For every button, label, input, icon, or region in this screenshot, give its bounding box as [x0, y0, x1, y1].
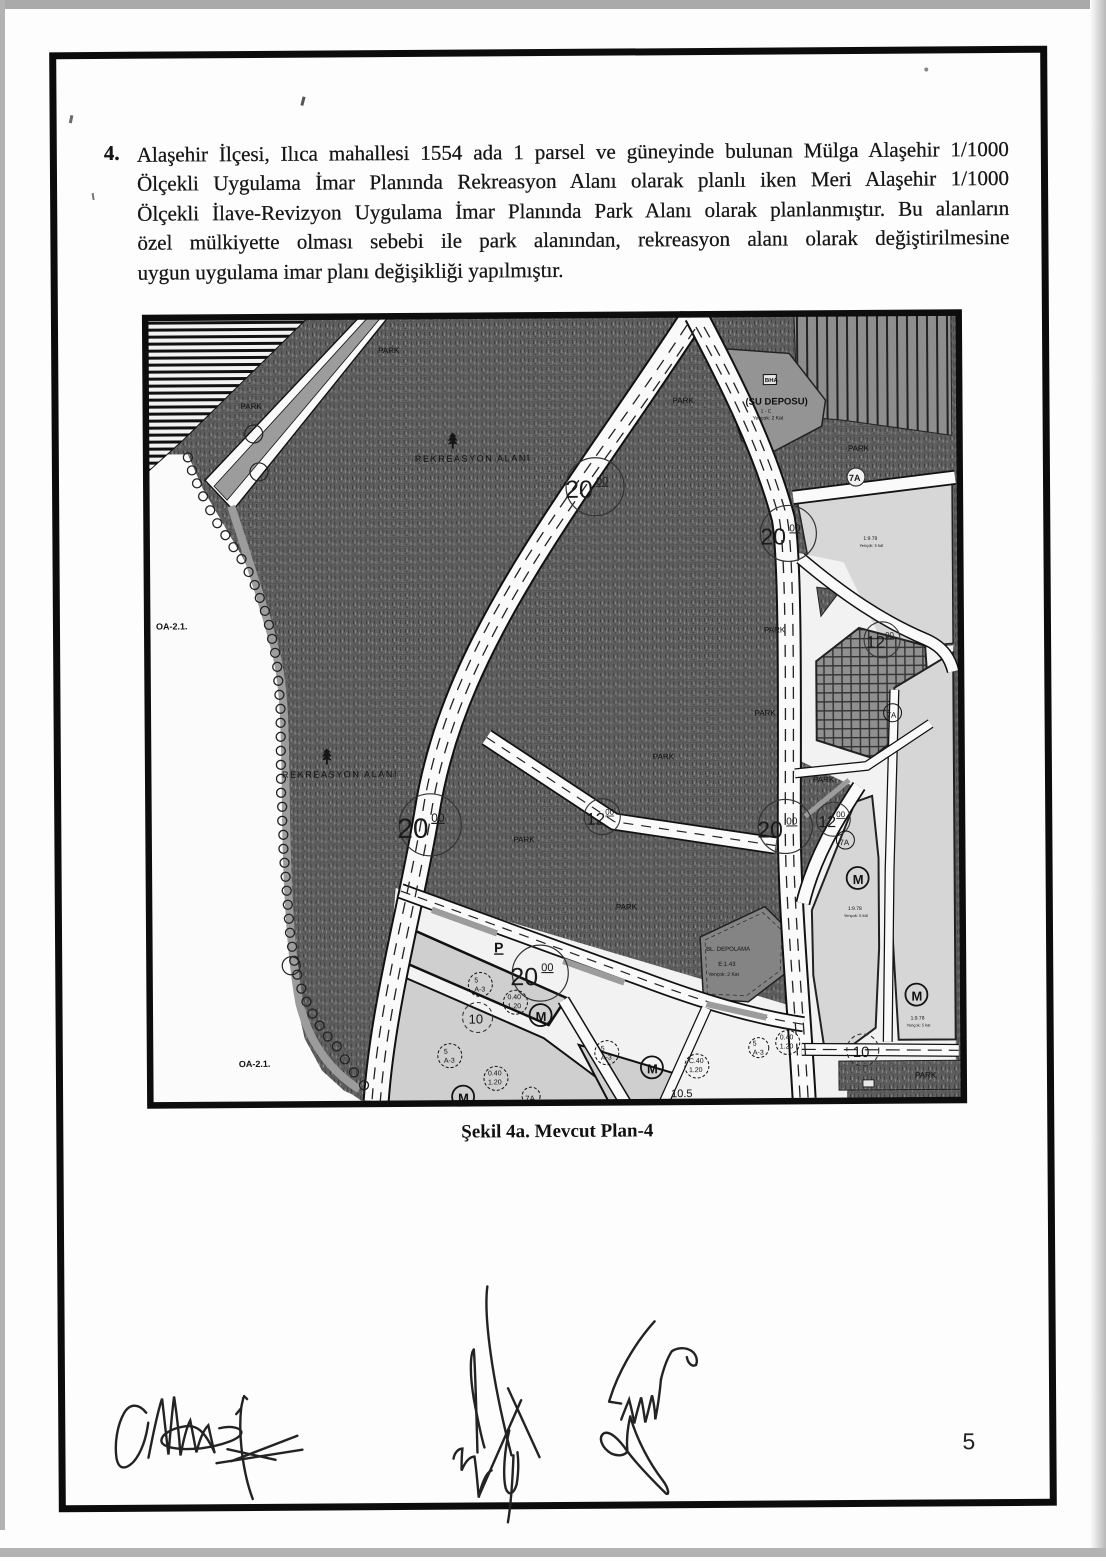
svg-text:C.40: C.40: [689, 1058, 704, 1065]
svg-text:10.5: 10.5: [671, 1088, 693, 1100]
svg-text:1.20: 1.20: [507, 1003, 521, 1010]
svg-text:12: 12: [866, 633, 885, 652]
svg-text:1.20: 1.20: [488, 1079, 502, 1086]
svg-text:0.40: 0.40: [488, 1070, 502, 1077]
svg-text:Yençok: 5 kat: Yençok: 5 kat: [844, 913, 869, 918]
svg-text:0.40: 0.40: [780, 1034, 794, 1041]
svg-text:OA-2.1.: OA-2.1.: [239, 1059, 271, 1069]
svg-text:7A: 7A: [839, 838, 850, 847]
svg-text:PARK: PARK: [764, 625, 786, 634]
svg-text:12: 12: [586, 810, 605, 829]
svg-text:20: 20: [397, 813, 428, 844]
svg-text:A-3: A-3: [753, 1050, 764, 1057]
svg-text:A-3: A-3: [601, 1055, 612, 1062]
svg-text:20: 20: [510, 963, 538, 991]
svg-text:10: 10: [853, 1044, 870, 1061]
svg-text:BHA: BHA: [765, 378, 779, 384]
svg-text:1:9.78: 1:9.78: [848, 906, 862, 912]
svg-text:M: M: [911, 989, 922, 1004]
svg-text:1:9.78: 1:9.78: [863, 536, 877, 542]
svg-text:Yençok: 5 kat: Yençok: 5 kat: [859, 543, 884, 548]
svg-text:P: P: [494, 939, 503, 955]
svg-text:00: 00: [786, 816, 798, 827]
svg-text:1:9.78: 1:9.78: [911, 1016, 925, 1022]
svg-text:20: 20: [760, 523, 786, 549]
svg-text:20: 20: [565, 476, 593, 504]
svg-text:1 - C: 1 - C: [761, 409, 772, 415]
svg-text:00: 00: [431, 811, 445, 825]
svg-text:REKREASYON ALANI: REKREASYON ALANI: [415, 453, 531, 464]
svg-text:00: 00: [789, 523, 801, 534]
svg-text:00: 00: [836, 810, 846, 819]
svg-text:A-3: A-3: [444, 1058, 455, 1065]
svg-text:M: M: [853, 872, 864, 887]
svg-text:20: 20: [757, 816, 783, 842]
svg-text:Yençok: 5 kat: Yençok: 5 kat: [907, 1022, 932, 1027]
svg-text:M: M: [647, 1061, 658, 1076]
svg-text:PARK: PARK: [848, 444, 870, 453]
svg-text:5: 5: [753, 1041, 757, 1048]
svg-text:PARK: PARK: [378, 346, 400, 355]
svg-text:Yençok: 2 Kat: Yençok: 2 Kat: [753, 415, 784, 421]
svg-text:PARK: PARK: [240, 402, 262, 411]
svg-text:M: M: [536, 1009, 547, 1024]
svg-text:00: 00: [605, 808, 615, 817]
svg-text:00: 00: [541, 962, 553, 974]
svg-text:00: 00: [596, 476, 608, 488]
svg-text:PARK: PARK: [915, 1070, 937, 1079]
svg-text:REKREASYON ALANI: REKREASYON ALANI: [282, 769, 398, 780]
svg-text:Yençok: 2 Kat: Yençok: 2 Kat: [708, 972, 739, 978]
svg-text:E:1.43: E:1.43: [718, 962, 736, 968]
svg-text:PARK: PARK: [813, 775, 835, 784]
svg-text:1.20: 1.20: [780, 1043, 794, 1050]
svg-text:PARK: PARK: [755, 709, 777, 718]
svg-text:10: 10: [469, 1011, 484, 1026]
svg-text:PARK: PARK: [513, 835, 535, 844]
svg-text:1.20: 1.20: [689, 1067, 703, 1074]
svg-text:PARK: PARK: [616, 902, 638, 911]
svg-text:PARK: PARK: [653, 752, 675, 761]
svg-text:00: 00: [885, 631, 895, 640]
svg-text:PARK: PARK: [672, 396, 694, 405]
svg-text:12: 12: [818, 814, 836, 831]
svg-text:7A: 7A: [887, 711, 898, 720]
svg-text:5: 5: [444, 1049, 448, 1056]
svg-text:(SU DEPOSU): (SU DEPOSU): [745, 396, 807, 407]
svg-text:BL. DEPOLAMA: BL. DEPOLAMA: [706, 947, 750, 953]
svg-text:7A: 7A: [849, 473, 861, 483]
svg-text:OA-2.1.: OA-2.1.: [156, 621, 188, 631]
svg-text:5: 5: [474, 977, 478, 984]
svg-text:5: 5: [601, 1046, 605, 1053]
svg-text:0.40: 0.40: [507, 994, 521, 1001]
svg-text:A-3: A-3: [474, 986, 485, 993]
